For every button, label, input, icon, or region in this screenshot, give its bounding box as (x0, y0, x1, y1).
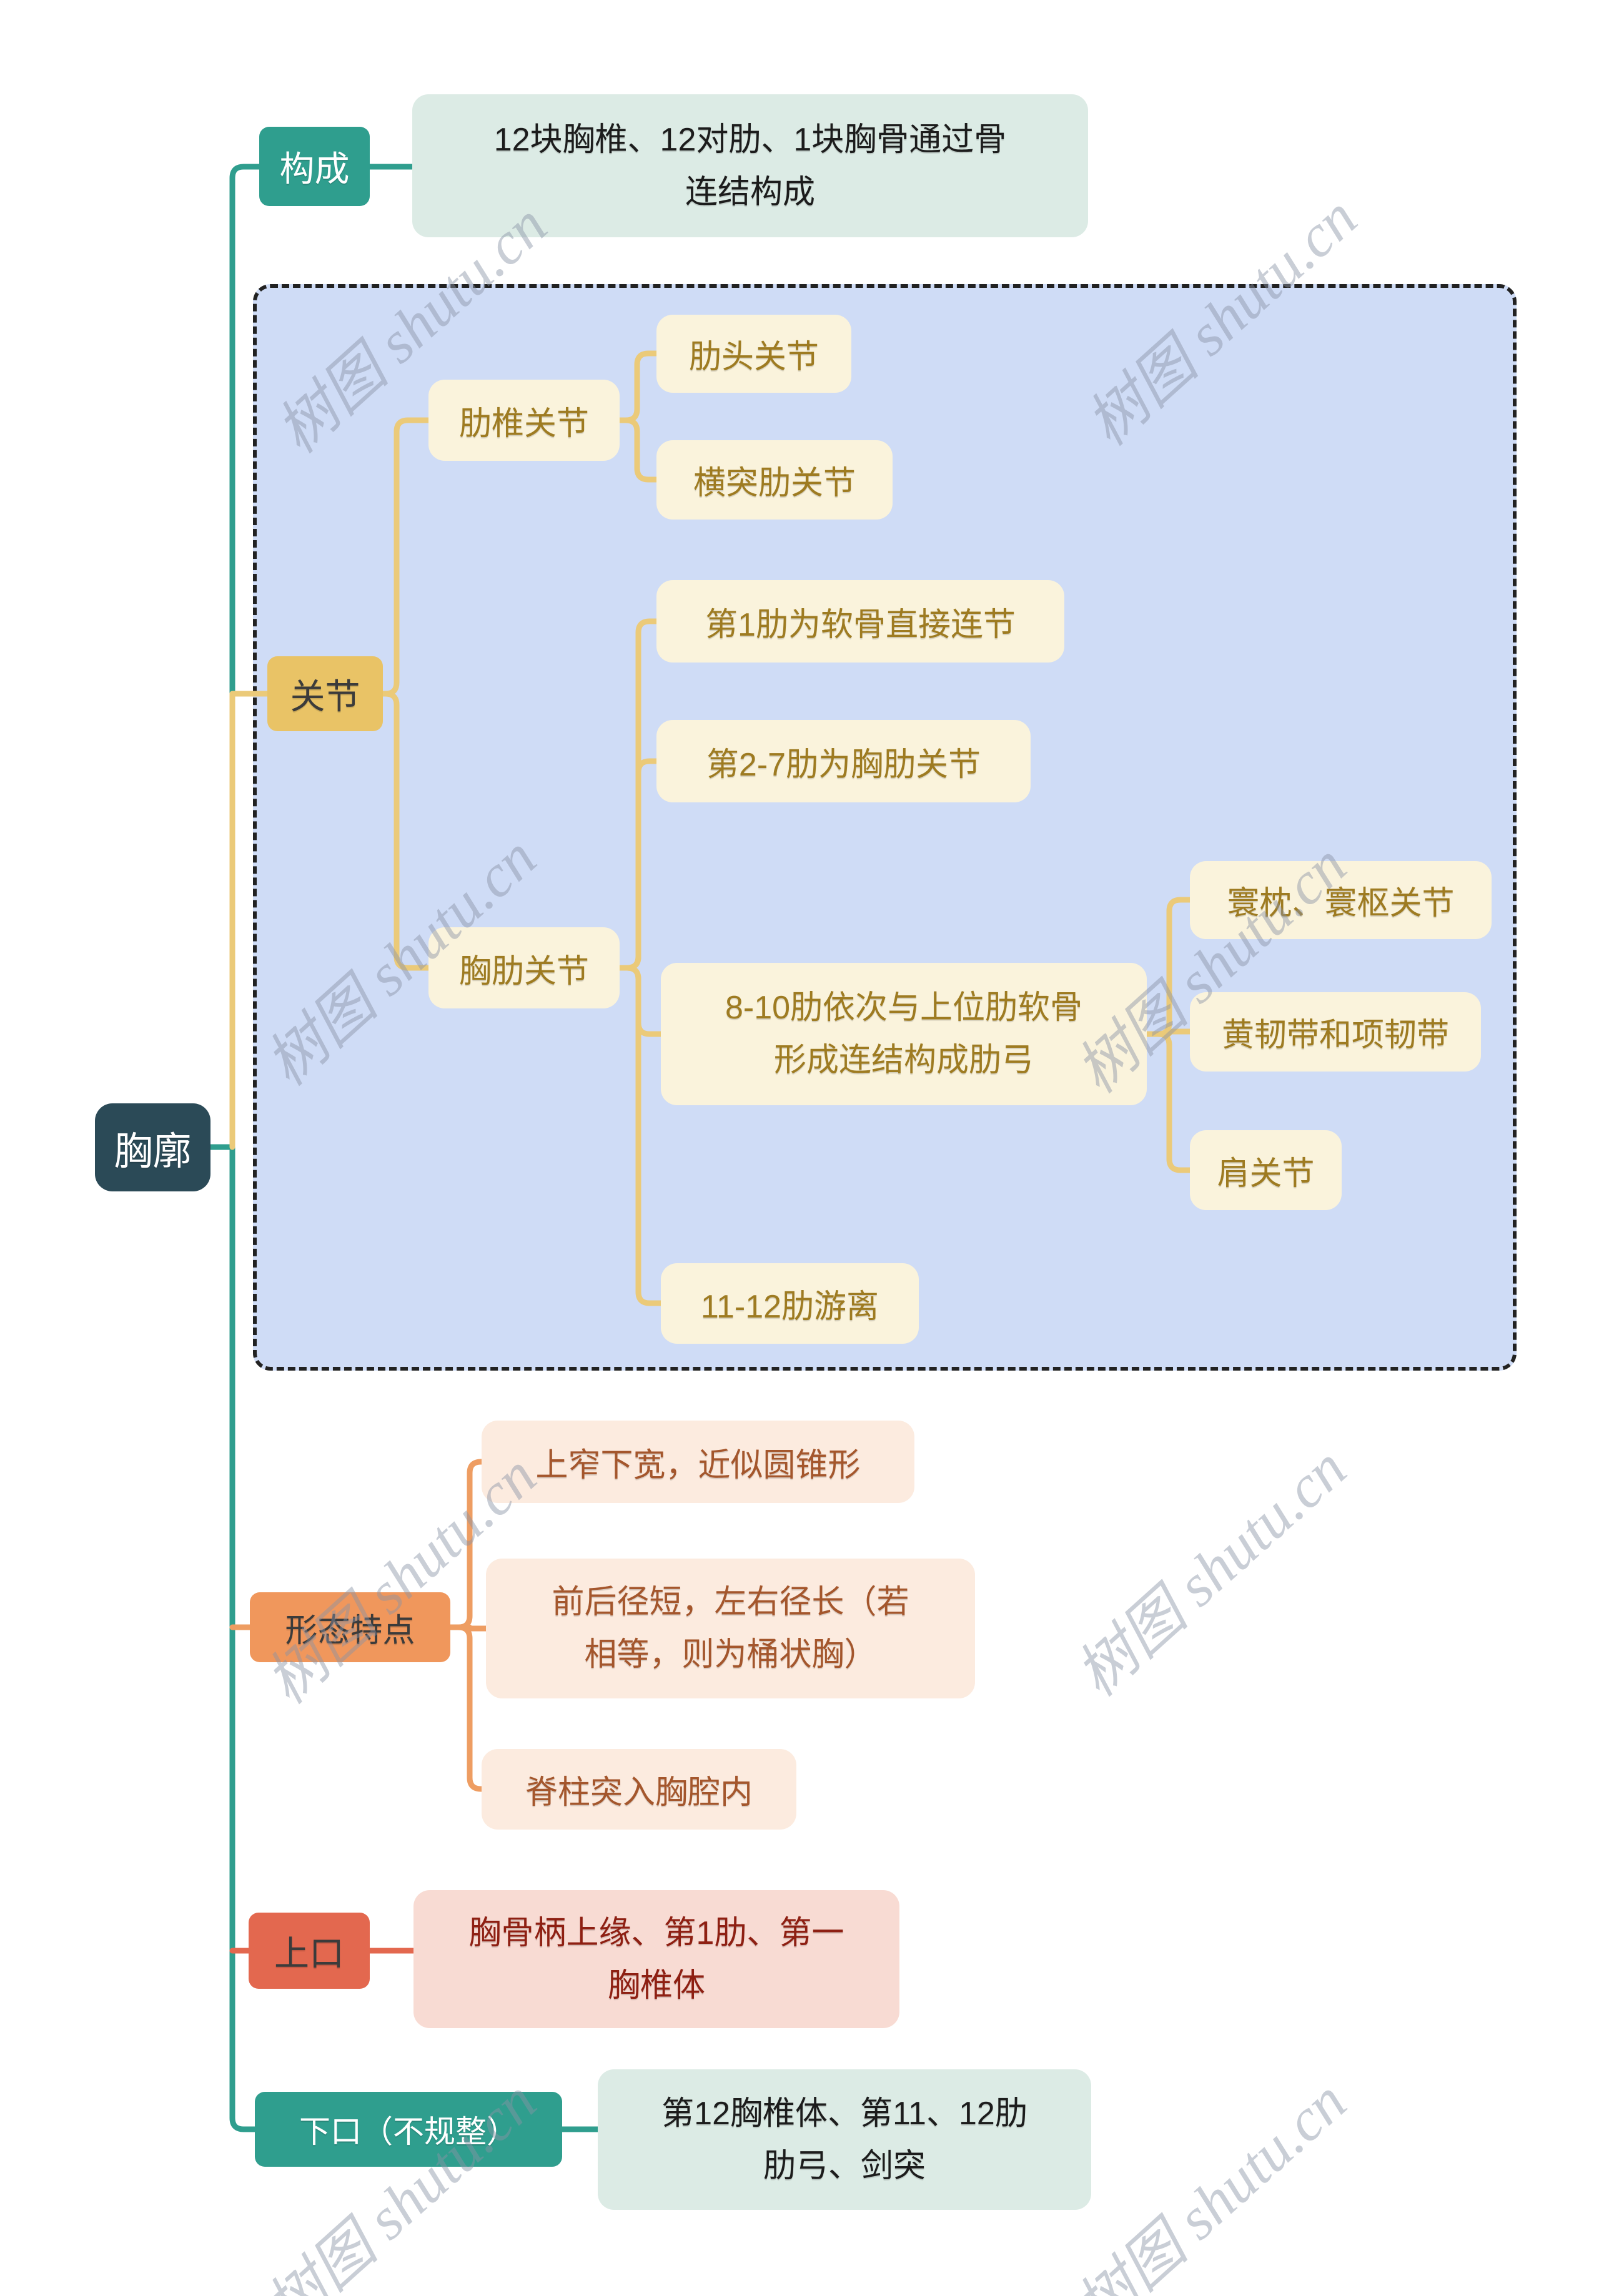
detail-inferior-aperture[interactable]: 第12胸椎体、第11、12肋 肋弓、剑突 (598, 2069, 1091, 2210)
node-costotransverse-joint[interactable]: 横突肋关节 (656, 440, 893, 520)
node-inferior-aperture[interactable]: 下口（不规整） (255, 2092, 562, 2167)
node-rib8-10[interactable]: 8-10肋依次与上位肋软骨 形成连结构成肋弓 (661, 963, 1147, 1105)
detail-superior-aperture[interactable]: 胸骨柄上缘、第1肋、第一 胸椎体 (413, 1890, 899, 2028)
detail-morphology-1[interactable]: 上窄下宽，近似圆锥形 (482, 1421, 914, 1503)
watermark-text: 树图 shutu.cn (1053, 2056, 1361, 2296)
node-sternocostal-joint[interactable]: 胸肋关节 (428, 927, 620, 1008)
node-root[interactable]: 胸廓 (95, 1103, 210, 1191)
node-rib1[interactable]: 第1肋为软骨直接连节 (656, 580, 1064, 663)
node-rib2-7[interactable]: 第2-7肋为胸肋关节 (656, 720, 1031, 802)
node-superior-aperture[interactable]: 上口 (249, 1913, 370, 1989)
node-rib-head-joint[interactable]: 肋头关节 (656, 315, 851, 393)
node-atlanto-joints[interactable]: 寰枕、寰枢关节 (1190, 861, 1492, 939)
node-shoulder-joint[interactable]: 肩关节 (1190, 1130, 1342, 1210)
mindmap-canvas: 胸廓 构成 12块胸椎、12对肋、1块胸骨通过骨 连结构成 关节 肋椎关节 肋头… (0, 0, 1599, 2296)
watermark-text: 树图 shutu.cn (1053, 1422, 1361, 1712)
node-ligaments[interactable]: 黄韧带和项韧带 (1190, 992, 1481, 1072)
connector (450, 1462, 482, 1627)
connector (450, 1627, 486, 1628)
node-joints[interactable]: 关节 (267, 656, 383, 731)
node-morphology[interactable]: 形态特点 (250, 1592, 450, 1662)
connector (450, 1627, 482, 1789)
node-rib11-12[interactable]: 11-12肋游离 (661, 1263, 919, 1344)
detail-morphology-3[interactable]: 脊柱突入胸腔内 (482, 1749, 796, 1830)
detail-morphology-2[interactable]: 前后径短，左右径长（若 相等，则为桶状胸） (486, 1559, 975, 1698)
detail-composition[interactable]: 12块胸椎、12对肋、1块胸骨通过骨 连结构成 (412, 94, 1088, 237)
node-composition[interactable]: 构成 (259, 127, 370, 206)
node-costovertebral-joint[interactable]: 肋椎关节 (428, 380, 620, 461)
